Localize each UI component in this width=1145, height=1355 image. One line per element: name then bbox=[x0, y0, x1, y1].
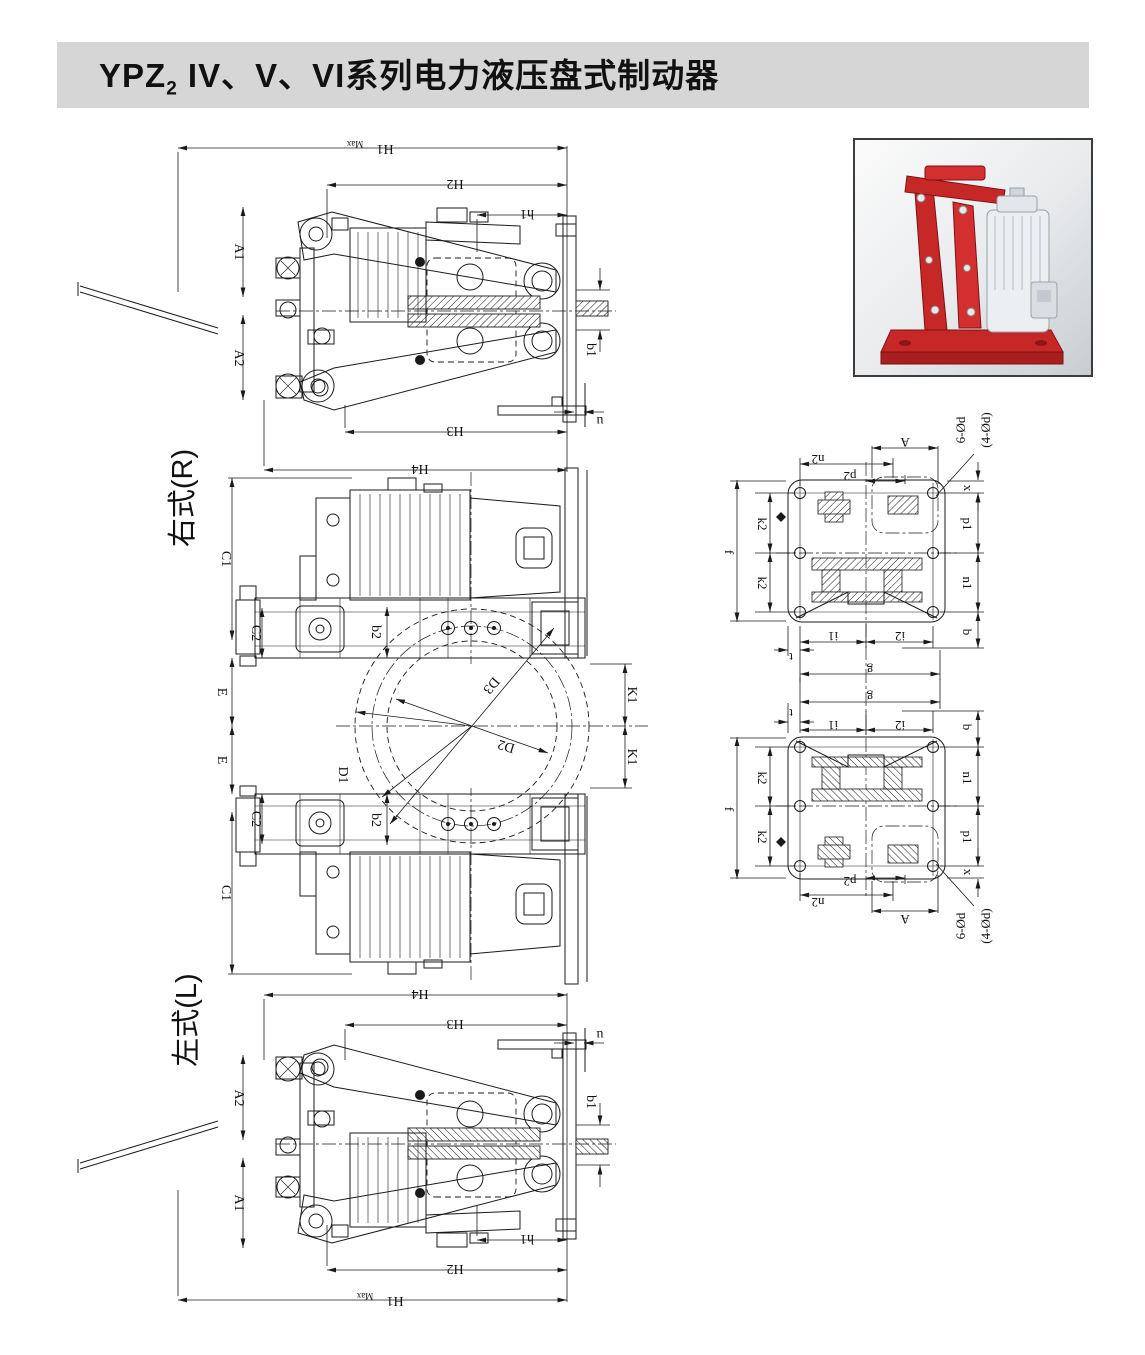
dim-label-H1-top: H1 Max bbox=[346, 139, 393, 156]
dim-label-n1-upper-plate: n1 bbox=[960, 577, 975, 590]
dim-label-h1-top: h1 bbox=[520, 206, 534, 221]
dim-label-b2-upper: b2 bbox=[368, 625, 383, 639]
dim-label-f-lower-plate: f bbox=[722, 807, 737, 812]
catalog-page: YPZ2 IV、V、VI系列电力液压盘式制动器 bbox=[0, 0, 1145, 1355]
dim-label-b-upper-plate: b bbox=[960, 629, 975, 636]
dim-label-C1-upper: C1 bbox=[218, 551, 233, 567]
dim-label-A2-top: A2 bbox=[231, 349, 246, 366]
dim-label-C2-upper: C2 bbox=[248, 625, 263, 641]
dim-label-i1-upper-plate: i1 bbox=[828, 629, 838, 644]
plan-view: C1 C2 E E C2 C1 b2 b2 K1 K1 D3 D2 D1 bbox=[214, 468, 648, 984]
view-label-left: 左式(L) bbox=[170, 973, 203, 1066]
dim-label-p2-upper-plate: p2 bbox=[844, 469, 857, 484]
dim-label-t-upper-plate: t bbox=[789, 650, 793, 665]
technical-drawing: H1 Max H2 h1 A1 A2 b1 u H3 H4 右式(R) bbox=[0, 0, 1145, 1355]
dim-label-p2-lower-plate: p2 bbox=[844, 874, 857, 889]
svg-text:Max: Max bbox=[346, 139, 363, 149]
dim-label-K1-upper: K1 bbox=[624, 686, 639, 703]
dim-label-D2: D2 bbox=[496, 736, 517, 755]
dim-label-t-lower-plate: t bbox=[789, 706, 793, 721]
view-label-right: 右式(R) bbox=[166, 449, 199, 547]
dim-label-H4-top: H4 bbox=[411, 461, 428, 476]
dim-label-C1-lower: C1 bbox=[218, 885, 233, 901]
dim-label-K1-lower: K1 bbox=[624, 748, 639, 765]
dim-label-n1-lower-plate: n1 bbox=[960, 772, 975, 785]
dim-label-H1-bottom: H1 Max bbox=[356, 1291, 403, 1308]
dim-label-A2-bottom: A2 bbox=[231, 1089, 246, 1106]
side-view-left-dimensions bbox=[178, 993, 610, 1302]
base-plate-upper: A n2 p2 x p1 n1 b k2 k2 f t i1 i2 g 6-Ød… bbox=[722, 412, 993, 897]
side-view-right: H1 Max H2 h1 A1 A2 b1 u H3 H4 右式(R) bbox=[78, 139, 616, 547]
dim-label-D1: D1 bbox=[335, 766, 350, 783]
dim-label-H2-top: H2 bbox=[446, 176, 463, 191]
svg-text:H1: H1 bbox=[386, 1293, 403, 1308]
dim-label-h1-bottom: h1 bbox=[520, 1231, 534, 1246]
dim-label-x-lower-plate: x bbox=[961, 869, 976, 876]
side-view-left: H4 H3 u A2 A1 b1 h1 H2 H1 Max 左式(L) bbox=[78, 973, 616, 1308]
dim-label-n2-lower-plate: n2 bbox=[812, 895, 825, 910]
dim-label-D3: D3 bbox=[480, 674, 502, 697]
dim-label-H4-bottom: H4 bbox=[411, 986, 428, 1001]
dim-label-x-upper-plate: x bbox=[961, 485, 976, 492]
dim-label-k2-upper-plate-1: k2 bbox=[755, 518, 770, 531]
hole-note-lower-line1: 6-Ød bbox=[953, 912, 968, 939]
dim-label-u-top: u bbox=[597, 413, 604, 428]
dim-label-A1-bottom: A1 bbox=[231, 1194, 246, 1211]
dim-label-E-upper: E bbox=[214, 688, 229, 697]
dim-label-g-upper-plate: g bbox=[866, 663, 873, 678]
dim-label-i1-lower-plate: i1 bbox=[828, 718, 838, 733]
dim-label-b-lower-plate: b bbox=[960, 724, 975, 731]
dim-label-i2-lower-plate: i2 bbox=[895, 718, 905, 733]
dim-label-f-upper-plate: f bbox=[722, 550, 737, 555]
brake-disc-circles bbox=[336, 609, 648, 843]
dim-label-p1-upper-plate: p1 bbox=[960, 518, 975, 531]
dim-label-A-upper-plate: A bbox=[900, 435, 910, 450]
dim-label-C2-lower: C2 bbox=[248, 811, 263, 827]
dim-label-p1-lower-plate: p1 bbox=[960, 831, 975, 844]
dim-label-k2-lower-plate-2: k2 bbox=[755, 831, 770, 844]
dim-label-g-lower-plate: g bbox=[866, 690, 873, 705]
dim-label-k2-upper-plate-2: k2 bbox=[755, 577, 770, 590]
base-plate-lower: g i1 i2 t b n1 p1 x k2 k2 f n2 p2 A 6-Ød… bbox=[722, 677, 993, 944]
hole-note-upper-line2: (4-Ød) bbox=[978, 412, 993, 447]
hole-note-upper-line1: 6-Ød bbox=[953, 416, 968, 443]
dim-label-H3-top: H3 bbox=[446, 423, 463, 438]
dim-label-b2-lower: b2 bbox=[368, 813, 383, 827]
dim-label-n2-upper-plate: n2 bbox=[812, 452, 825, 467]
dim-label-A-lower-plate: A bbox=[900, 912, 910, 927]
dim-label-k2-lower-plate-1: k2 bbox=[755, 772, 770, 785]
hole-note-lower-line2: (4-Ød) bbox=[978, 908, 993, 943]
side-view-right-dimensions bbox=[178, 146, 610, 472]
dim-label-b1-bottom: b1 bbox=[583, 1095, 598, 1109]
dim-label-H3-bottom: H3 bbox=[446, 1016, 463, 1031]
dim-label-H2-bottom: H2 bbox=[446, 1261, 463, 1276]
dim-label-b1-top: b1 bbox=[583, 343, 598, 357]
dim-label-u-bottom: u bbox=[597, 1027, 604, 1042]
svg-text:Max: Max bbox=[356, 1291, 373, 1301]
dim-label-E-lower: E bbox=[214, 756, 229, 765]
dim-label-A1-top: A1 bbox=[231, 243, 246, 260]
svg-text:H1: H1 bbox=[376, 141, 393, 156]
dim-label-i2-upper-plate: i2 bbox=[895, 629, 905, 644]
